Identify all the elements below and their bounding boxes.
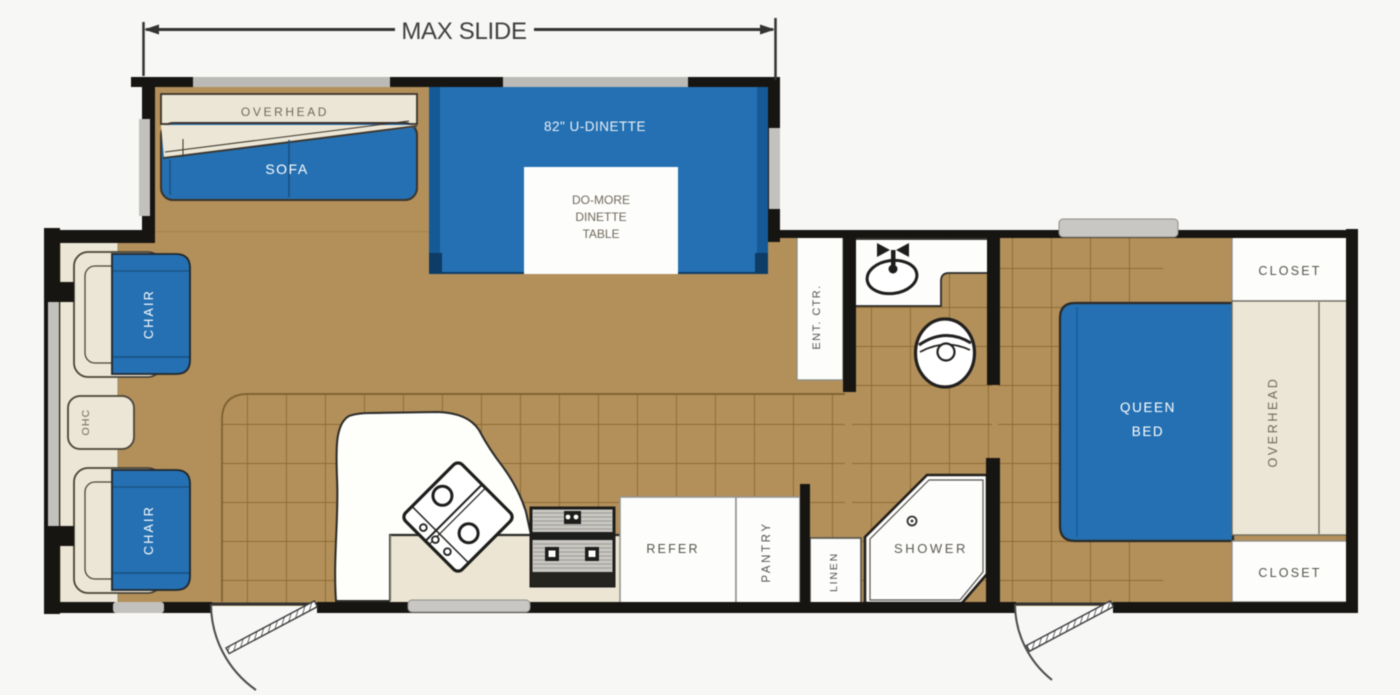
svg-text:82" U-DINETTE: 82" U-DINETTE	[544, 119, 646, 134]
svg-text:CHAIR: CHAIR	[142, 505, 156, 555]
svg-text:ENT. CTR.: ENT. CTR.	[811, 284, 823, 349]
svg-text:OVERHEAD: OVERHEAD	[241, 105, 329, 119]
svg-text:SOFA: SOFA	[265, 161, 308, 177]
svg-text:CLOSET: CLOSET	[1258, 264, 1321, 278]
svg-text:DO-MORE: DO-MORE	[572, 193, 630, 207]
svg-text:TABLE: TABLE	[582, 227, 619, 241]
svg-text:REFER: REFER	[646, 542, 699, 556]
svg-text:SHOWER: SHOWER	[894, 541, 968, 556]
svg-text:BED: BED	[1132, 424, 1165, 439]
svg-text:PANTRY: PANTRY	[761, 521, 773, 582]
svg-text:OHC: OHC	[80, 409, 92, 436]
svg-text:CLOSET: CLOSET	[1258, 566, 1321, 580]
svg-text:LINEN: LINEN	[828, 552, 840, 592]
svg-text:OVERHEAD: OVERHEAD	[1266, 377, 1280, 468]
svg-text:CHAIR: CHAIR	[142, 289, 156, 339]
svg-text:DINETTE: DINETTE	[575, 210, 626, 224]
svg-text:QUEEN: QUEEN	[1120, 400, 1176, 415]
svg-text:MAX SLIDE: MAX SLIDE	[401, 18, 526, 45]
